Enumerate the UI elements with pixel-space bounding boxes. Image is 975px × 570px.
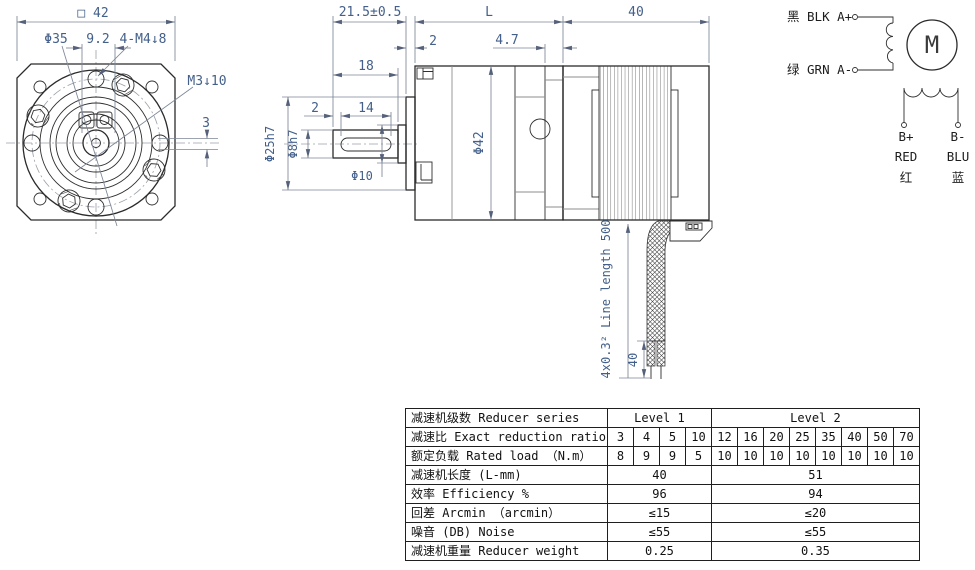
efficiency-level1: 96 [607,485,711,504]
lead-a-minus-label: 绿 GRN A- [787,62,852,77]
dim-pilot-dia: Φ25h7 [263,126,277,162]
backlash-level1: ≤15 [607,504,711,523]
reducer-spec-table: 减速机级数 Reducer series Level 1 Level 2 减速比… [405,408,920,561]
terminal-a-plus [853,15,858,20]
stator-rail-left [592,90,599,197]
backlash-label: 回差 Arcmin （arcmin） [406,504,608,523]
hex-screw [142,158,166,182]
table-cell: 8 [607,447,633,466]
efficiency-level2: 94 [711,485,919,504]
dim-boss-protrusion: 2 [429,34,437,49]
lead-a-plus-label: 黑 BLK A+ [787,9,852,24]
dim-shaft-flat: 18 [358,59,374,74]
dim-hole-spacing: 9.2 [86,32,109,47]
length-level2: 51 [711,466,919,485]
lead-b-plus-cn: 红 [900,170,913,185]
table-cell: 10 [867,447,893,466]
series-label: 减速机级数 Reducer series [406,409,608,428]
table-cell: 10 [711,447,737,466]
terminal-b-plus [902,123,907,128]
table-cell: 10 [789,447,815,466]
table-row: 回差 Arcmin （arcmin） ≤15 ≤20 [406,504,920,523]
lead-b-minus-sign: B- [950,129,965,144]
table-cell: 3 [607,428,633,447]
table-cell: 10 [841,447,867,466]
gearbox-body [415,66,563,220]
table-cell: 25 [789,428,815,447]
cable-spec-label: 4x0.3² Line length 500 [599,220,613,379]
table-cell: 10 [737,447,763,466]
table-cell: 5 [685,447,711,466]
table-cell: 4 [633,428,659,447]
table-row: 减速机级数 Reducer series Level 1 Level 2 [406,409,920,428]
dim-body-dia: Φ42 [472,131,487,154]
motor-symbol-letter: M [925,31,939,59]
table-cell: 40 [841,428,867,447]
dim-shaft-length: 21.5±0.5 [339,5,402,20]
dim-square-42: □ 42 [77,6,108,21]
dim-side-tap: M3↓10 [187,74,226,89]
lead-b-minus-color: BLU [947,149,970,164]
cable-wire [647,341,655,366]
lead-b-plus-sign: B+ [898,129,913,144]
noise-level2: ≤55 [711,523,919,542]
efficiency-label: 效率 Efficiency % [406,485,608,504]
table-row: 噪音 (DB) Noise ≤55 ≤55 [406,523,920,542]
phase-b-coil [904,88,958,122]
table-cell: 5 [659,428,685,447]
noise-label: 噪音 (DB) Noise [406,523,608,542]
terminal-b-minus [956,123,961,128]
table-row: 减速比 Exact reduction ratio 3 4 5 10 12 16… [406,428,920,447]
dim-mount-holes: 4-M4↓8 [120,32,167,47]
bare-leads [651,366,661,379]
table-cell: 9 [659,447,685,466]
dim-bolt-circle: Φ35 [44,32,67,47]
weight-level1: 0.25 [607,542,711,561]
wire-a [858,63,893,70]
engineering-drawing-page: □ 42 9.2 Φ35 4-M4↓8 M3↓10 3 [0,0,975,570]
keyway-flat [341,138,391,151]
table-row: 减速机重量 Reducer weight 0.25 0.35 [406,542,920,561]
dim-motor-length: 40 [628,5,644,20]
length-label: 减速机长度 (L-mm) [406,466,608,485]
table-cell: 12 [711,428,737,447]
dim-collar-dia: Φ10 [351,169,373,183]
weight-level2: 0.35 [711,542,919,561]
dim-keyway-length: 14 [358,101,374,116]
dim-gearbox-length: L [485,5,493,20]
level2-header: Level 2 [711,409,919,428]
table-row: 效率 Efficiency % 96 94 [406,485,920,504]
front-view: □ 42 9.2 Φ35 4-M4↓8 M3↓10 3 [6,6,227,236]
table-cell: 16 [737,428,763,447]
ratio-label: 减速比 Exact reduction ratio [406,428,608,447]
table-row: 减速机长度 (L-mm) 40 51 [406,466,920,485]
table-cell: 10 [685,428,711,447]
side-view: 21.5±0.5 L 40 2 4.7 18 2 14 Φ8h7 Φ25h7 [263,5,712,379]
backlash-level2: ≤20 [711,504,919,523]
table-cell: 10 [815,447,841,466]
length-level1: 40 [607,466,711,485]
table-cell: 9 [633,447,659,466]
load-label: 额定负载 Rated load （N.m） [406,447,608,466]
dim-wire-strip: 40 [626,353,640,367]
stator-rail-right [671,90,678,197]
pilot-boss [406,97,415,190]
table-cell: 20 [763,428,789,447]
dim-keyway-offset: 2 [311,101,319,116]
m3-hole [100,116,109,125]
level1-header: Level 1 [607,409,711,428]
wiring-diagram: 黑 BLK A+ 绿 GRN A- M B+ RED 红 B- BLU 蓝 [787,9,969,185]
gearbox-hole [530,119,550,139]
table-cell: 70 [893,428,919,447]
phase-a-coil [886,23,893,63]
dim-offset-3: 3 [202,116,210,131]
dim-rear-plate: 4.7 [495,33,518,48]
noise-level1: ≤55 [607,523,711,542]
table-cell: 10 [763,447,789,466]
motor-laminations [599,66,671,220]
lead-b-plus-color: RED [895,149,918,164]
cable-wire [657,341,665,366]
table-row: 额定负载 Rated load （N.m） 8 9 9 5 10 10 10 1… [406,447,920,466]
weight-label: 减速机重量 Reducer weight [406,542,608,561]
table-cell: 35 [815,428,841,447]
lead-b-minus-cn: 蓝 [952,170,965,185]
terminal-a-minus [853,68,858,73]
gearbox-ear-top [417,68,433,79]
table-cell: 10 [893,447,919,466]
table-cell: 50 [867,428,893,447]
